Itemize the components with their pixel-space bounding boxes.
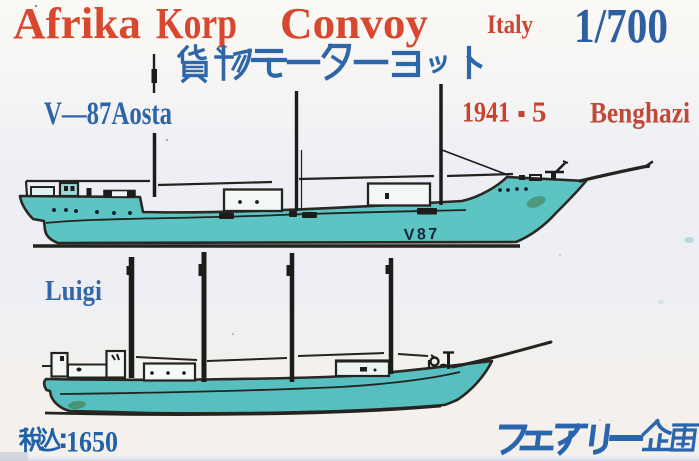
svg-text:1941: 1941 — [462, 97, 510, 129]
svg-text:5: 5 — [532, 97, 547, 129]
svg-text:Convoy: Convoy — [280, 0, 428, 48]
svg-text:1/700: 1/700 — [574, 0, 668, 53]
svg-text:V—87Aosta: V—87Aosta — [44, 96, 172, 132]
svg-text:1650: 1650 — [66, 426, 118, 459]
svg-text:Luigi: Luigi — [45, 276, 102, 307]
svg-text:Benghazi: Benghazi — [590, 97, 690, 130]
svg-text:Italy: Italy — [487, 10, 533, 39]
svg-text:V87: V87 — [404, 226, 441, 244]
svg-text:Afrika: Afrika — [13, 0, 141, 48]
svg-text:Korp: Korp — [156, 0, 237, 48]
